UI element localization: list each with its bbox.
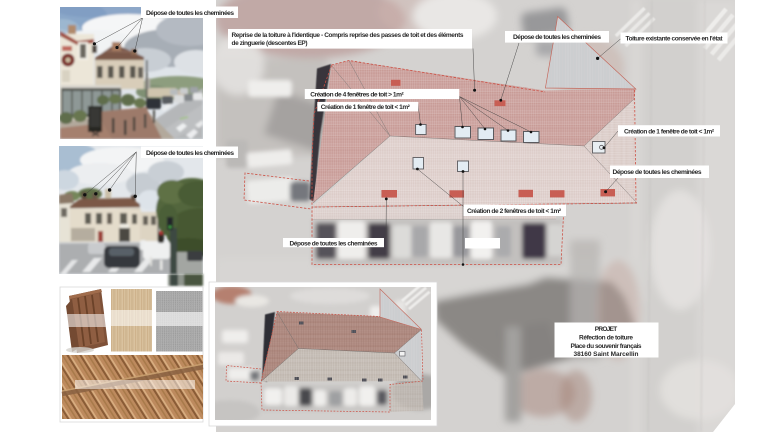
svg-text:Création de 1 fenêtre de toit: Création de 1 fenêtre de toit < 1m² xyxy=(321,104,411,111)
svg-text:Dépose de toutes les cheminées: Dépose de toutes les cheminées xyxy=(146,150,234,157)
svg-text:Réfection de toiture: Réfection de toiture xyxy=(579,334,633,341)
svg-text:de zinguerie (descentes EP): de zinguerie (descentes EP) xyxy=(232,40,308,47)
svg-text:38160 Saint Marcellin: 38160 Saint Marcellin xyxy=(574,351,639,358)
svg-text:Création de 4 fenêtres de toit: Création de 4 fenêtres de toit > 1m² xyxy=(310,92,404,99)
svg-text:Dépose de toutes les cheminées: Dépose de toutes les cheminées xyxy=(513,34,601,41)
svg-text:Dépose de toutes les cheminées: Dépose de toutes les cheminées xyxy=(290,240,378,247)
svg-text:Création de 1 fenêtre de toit: Création de 1 fenêtre de toit < 1m² xyxy=(624,128,715,135)
svg-text:Dépose de toutes les cheminées: Dépose de toutes les cheminées xyxy=(146,10,234,17)
svg-text:Dépose de toutes les cheminées: Dépose de toutes les cheminées xyxy=(613,169,702,176)
svg-text:Création de 2 fenêtres de toit: Création de 2 fenêtres de toit < 1m² xyxy=(467,208,562,215)
svg-text:Reprise de la toiture à l'iden: Reprise de la toiture à l'identique - Co… xyxy=(232,32,464,39)
svg-text:PROJET: PROJET xyxy=(595,326,618,333)
svg-text:Toiture existante conservée en: Toiture existante conservée en l'état xyxy=(626,35,724,42)
svg-text:Place du souvenir français: Place du souvenir français xyxy=(571,343,642,350)
